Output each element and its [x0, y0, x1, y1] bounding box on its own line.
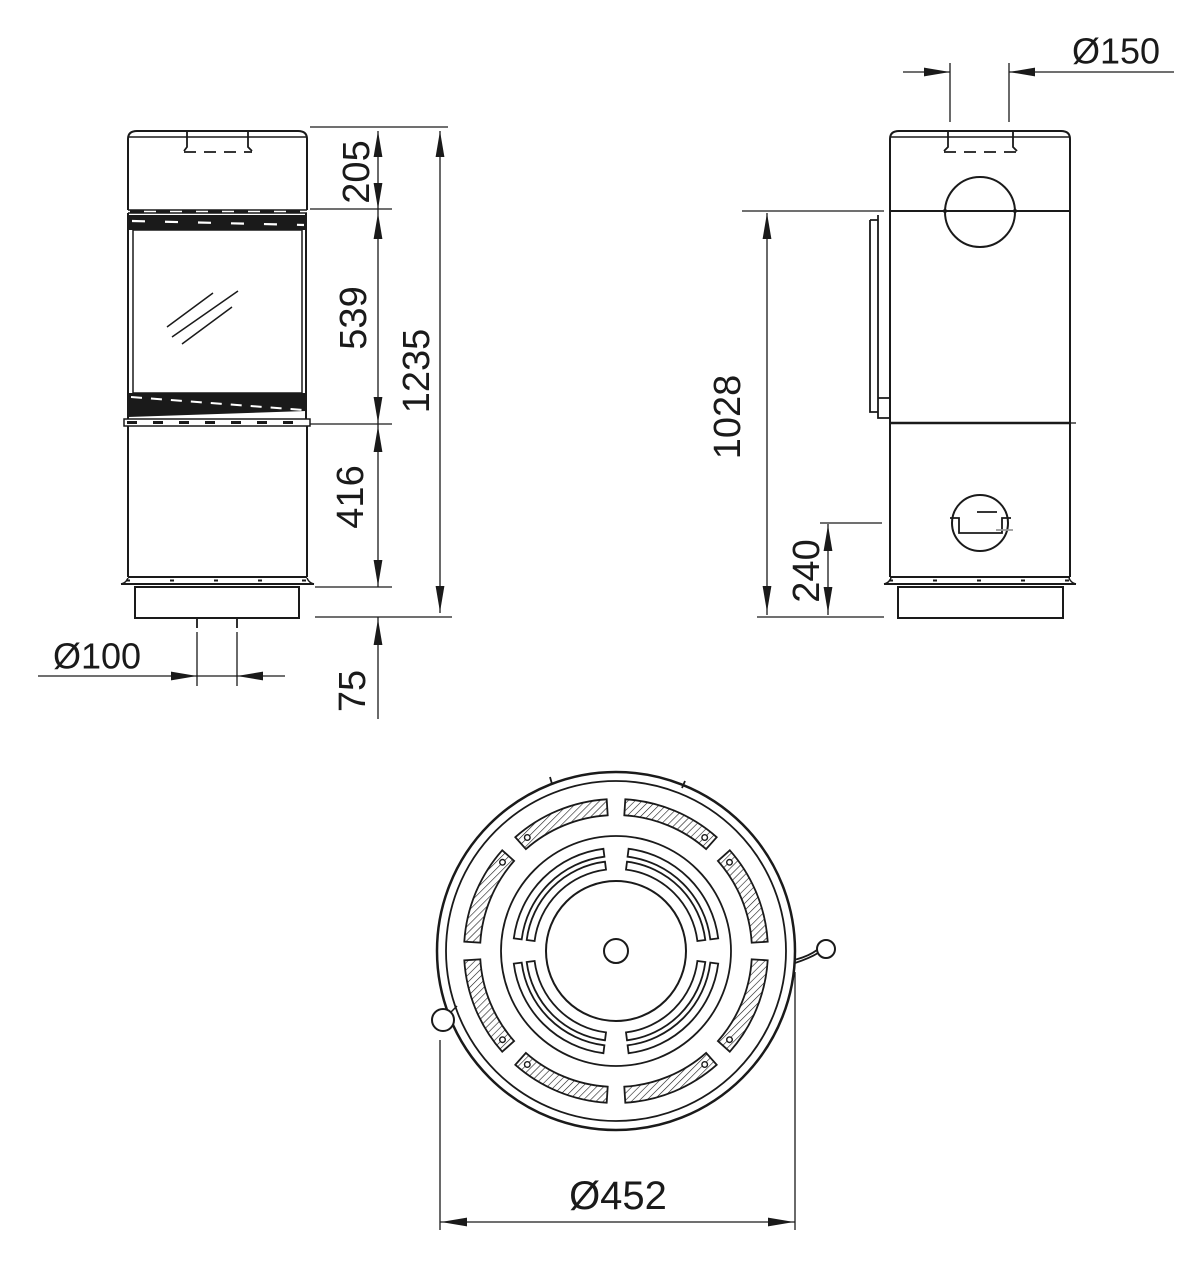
vent-slot-wsw — [464, 959, 514, 1051]
front-glass-panel — [133, 230, 302, 393]
vent-slot-ene — [718, 850, 768, 942]
front-door-bottom-band — [128, 393, 306, 417]
top-inner-rim-circle — [446, 781, 786, 1121]
dim-label-air-inlet-height: 240 — [786, 539, 828, 602]
vent-slot-nnw — [515, 799, 607, 849]
dim-label-lower-section: 416 — [330, 465, 372, 528]
side-air-inlet-circle — [952, 495, 1008, 551]
top-center-hole — [604, 939, 628, 963]
vent-slot-wnw — [464, 850, 514, 942]
front-flue-collar — [184, 131, 252, 151]
front-lower-seam — [124, 419, 310, 426]
hinge-pin — [432, 1009, 454, 1031]
front-lower-body — [128, 426, 307, 577]
side-seam-dot-right — [1013, 209, 1017, 213]
side-plinth — [898, 587, 1063, 618]
vent-slot-sse — [624, 1053, 716, 1103]
arrow-539-top — [374, 213, 383, 239]
arrow-1028-bottom — [763, 586, 772, 612]
handle-knob — [817, 940, 835, 958]
vent-slot-nne — [624, 799, 716, 849]
top-hotplate-circle — [546, 881, 686, 1021]
dim-label-total-height: 1235 — [396, 329, 438, 414]
side-flue-collar — [944, 131, 1017, 151]
arrow-d452-right — [768, 1218, 794, 1227]
front-plinth — [135, 587, 299, 618]
arrow-1028-top — [763, 213, 772, 239]
drawing-canvas: 205 539 1235 416 75 Ø100 Ø150 1028 240 Ø… — [0, 0, 1200, 1271]
vent-slot-ssw — [515, 1053, 607, 1103]
arrow-d100-left — [171, 672, 197, 681]
dim-label-plinth-height: 75 — [332, 670, 374, 712]
front-floor-flue-stub — [197, 618, 237, 628]
vent-slot-ese — [718, 959, 768, 1051]
arrow-75 — [374, 619, 383, 645]
arrow-416-top — [374, 426, 383, 452]
dim-label-top-section: 205 — [336, 140, 378, 203]
top-inner-vent-ring-outer — [514, 849, 718, 1053]
handle-stem — [795, 950, 818, 963]
side-view — [870, 131, 1076, 618]
dim-label-window-section: 539 — [333, 286, 375, 349]
inner-slot-ne — [628, 849, 719, 940]
top-outer-vent-slots — [464, 799, 767, 1102]
top-view — [432, 772, 835, 1130]
inner-slot-se — [628, 963, 719, 1054]
top-middle-circle — [501, 836, 731, 1066]
front-view — [121, 131, 314, 628]
top-inner-vent-ring-inner — [527, 862, 706, 1041]
arrow-d452-left — [441, 1218, 467, 1227]
top-outer-circle — [437, 772, 795, 1130]
arrow-1235-bottom — [436, 586, 445, 612]
dim-label-flue-diameter: Ø150 — [1072, 31, 1160, 72]
dim-label-floor-flue-diameter: Ø100 — [53, 636, 141, 677]
front-top-cap — [128, 131, 307, 210]
front-door-edges — [128, 213, 306, 419]
stove-dimension-drawing: 205 539 1235 416 75 Ø100 Ø150 1028 240 Ø… — [0, 0, 1200, 1271]
arrow-d100-right — [237, 672, 263, 681]
inner-slot-sw — [514, 963, 605, 1054]
arrow-d150-right — [1009, 68, 1035, 77]
dim-label-body-below-top: 1028 — [707, 375, 749, 460]
front-glass-reflection — [167, 291, 238, 344]
side-seam-dot-left — [943, 209, 947, 213]
front-door-top-band — [128, 215, 306, 230]
dim-label-outer-diameter: Ø452 — [569, 1174, 667, 1218]
arrow-416-bottom — [374, 560, 383, 586]
front-flue-extension-lines — [197, 632, 237, 686]
arrow-539-bottom — [374, 397, 383, 423]
arrow-d150-left — [924, 68, 950, 77]
side-hinge-strips — [870, 215, 890, 418]
inner-slot-nw — [514, 849, 605, 940]
arrow-1235-top — [436, 131, 445, 157]
